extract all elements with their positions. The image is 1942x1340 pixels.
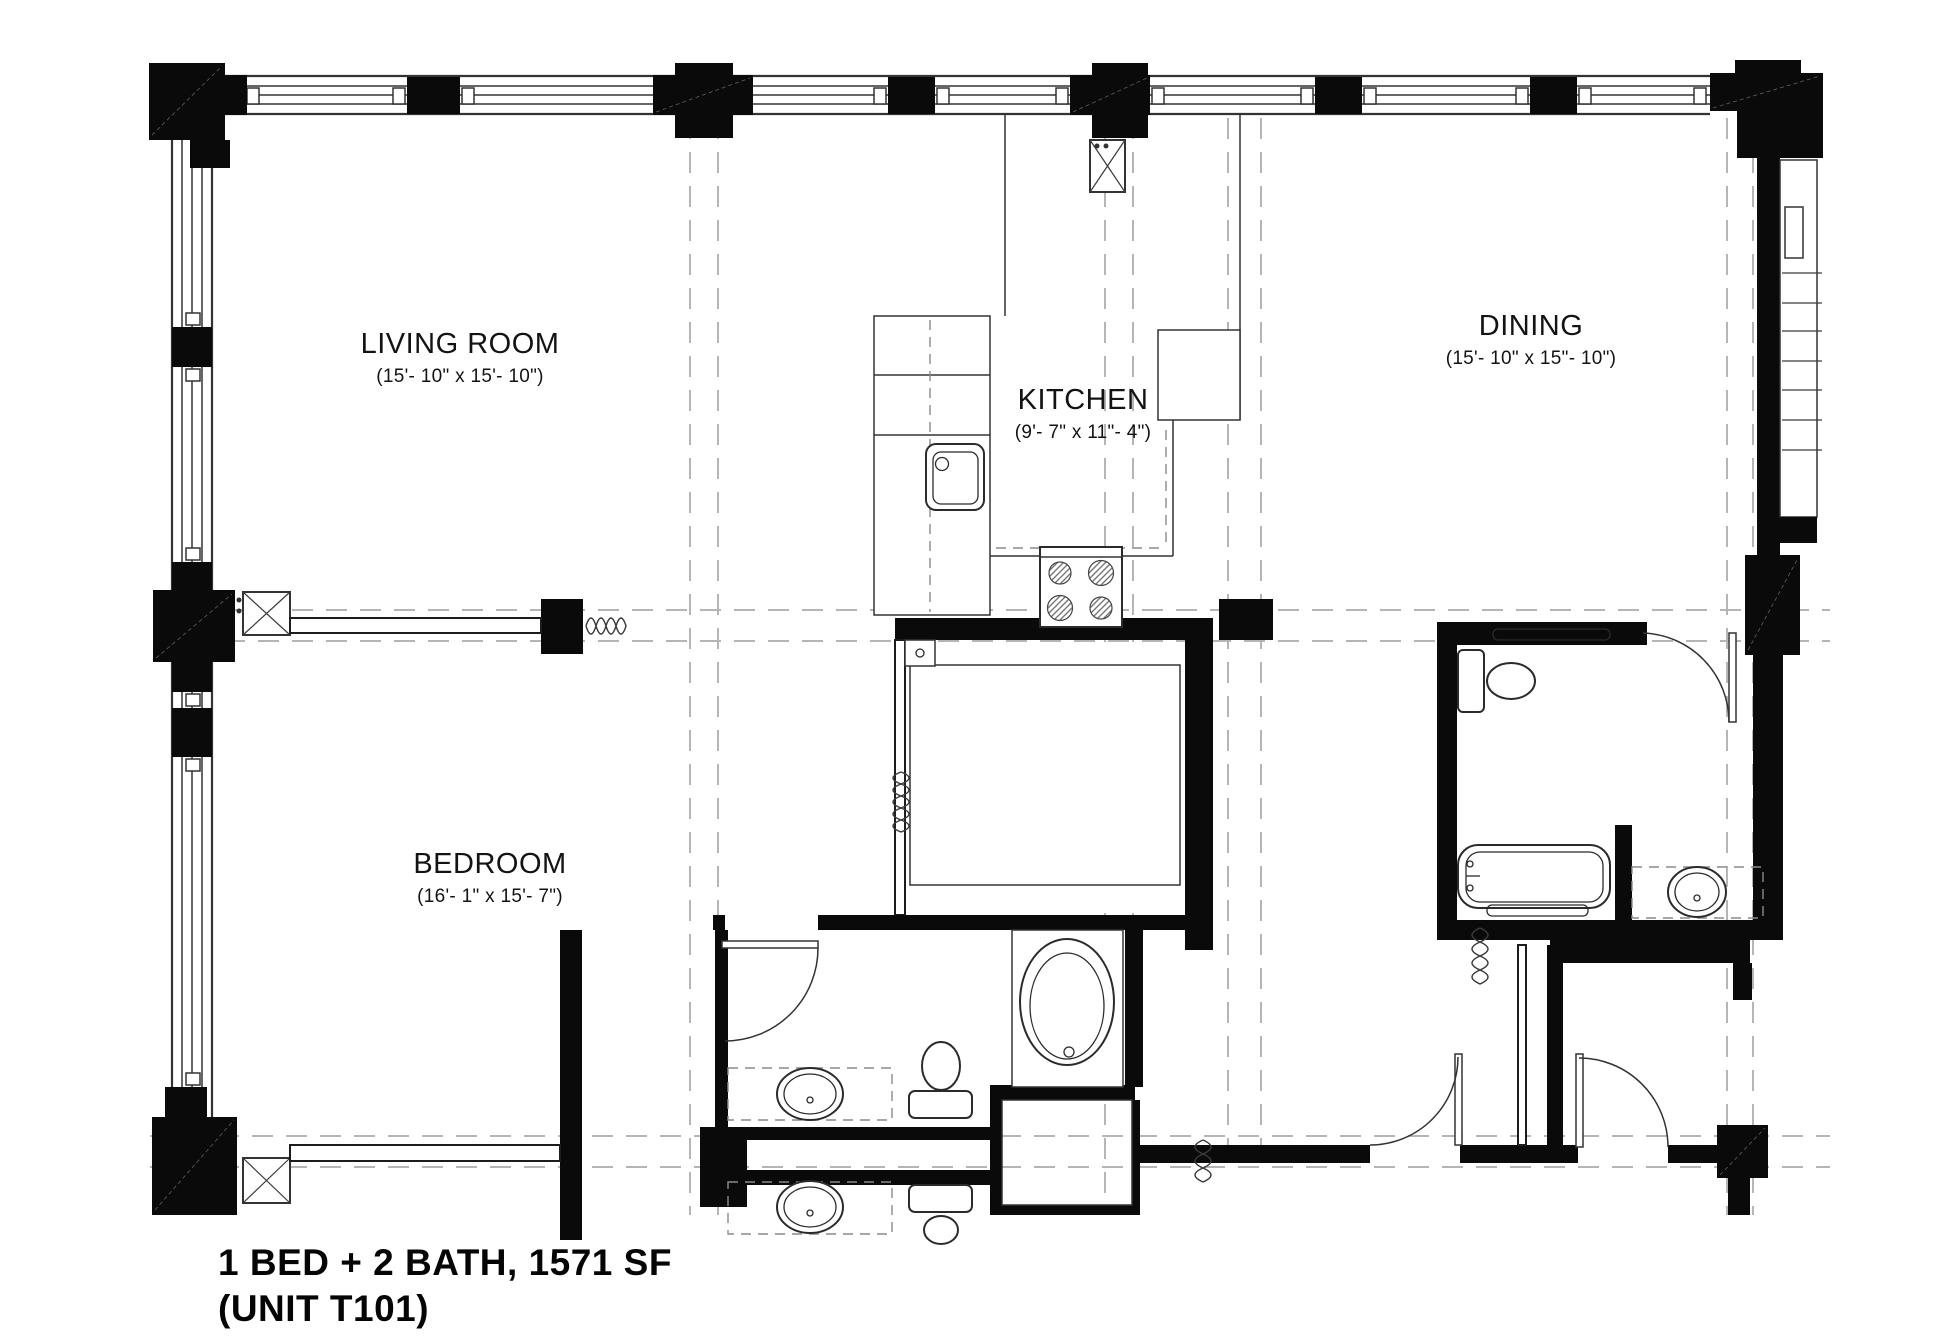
wall-fixture [905,640,935,666]
toilet [1458,650,1535,712]
wall [1460,1145,1578,1163]
wall [747,1170,990,1185]
room-label-bedroom: BEDROOM (16'- 1" x 15'- 7") [413,848,566,908]
wall [700,1127,747,1207]
room-name: DINING [1446,310,1617,343]
room-label-dining: DINING (15'- 10" x 15"- 10") [1446,310,1617,370]
wall [1757,128,1780,560]
vanity-sink [1632,867,1763,918]
wall [1753,650,1783,930]
shower-floor [1002,1100,1132,1205]
wall [1437,622,1647,645]
kitchen-sink [926,444,984,510]
wall [1437,920,1783,940]
room-name: BEDROOM [413,848,566,881]
column [1219,599,1273,640]
column [1728,1178,1750,1215]
wall [1733,963,1752,1000]
plan-title: 1 BED + 2 BATH, 1571 SF (UNIT T101) [218,1240,672,1333]
plan-title-line1: 1 BED + 2 BATH, 1571 SF [218,1240,672,1286]
wall [895,640,905,915]
column [172,708,212,757]
shaft-x-box [243,1158,290,1203]
wall [290,618,541,633]
room-dimensions: (15'- 10" x 15'- 10") [361,366,560,388]
bathroom-door [722,941,818,1041]
wall [747,1127,990,1140]
insulation-coil [586,618,626,634]
column [172,327,212,367]
wall [1002,1205,1140,1215]
toilet [909,1185,972,1212]
column [153,562,235,692]
kitchen-cabinet [1158,330,1240,420]
room-label-kitchen: KITCHEN (9'- 7" x 11"- 4") [1015,384,1152,444]
room-dimensions: (15'- 10" x 15"- 10") [1446,348,1617,370]
wall [713,915,725,930]
kitchen-area [874,316,1240,627]
bathtub [1012,930,1123,1087]
wall [560,930,582,1240]
bathroom-door [1643,633,1736,722]
column [152,1117,237,1215]
wall [290,1145,560,1161]
radiator-shelf [1780,160,1822,543]
floor-plan-drawing [0,0,1942,1340]
wall [1547,945,1563,1145]
wall [1185,618,1213,950]
column [190,140,230,168]
shaft-x-box [1090,140,1125,192]
room-dimensions: (16'- 1" x 15'- 7") [413,886,566,908]
toilet [924,1216,958,1244]
wall [1437,622,1457,920]
column [653,63,753,138]
column [888,77,935,114]
wall [715,930,728,1130]
plan-title-line2: (UNIT T101) [218,1286,672,1332]
room-name: LIVING ROOM [361,328,560,361]
lower-unit-bathroom-partial [728,1181,972,1244]
column [225,75,247,115]
stove [1040,547,1122,627]
room-label-living-room: LIVING ROOM (15'- 10" x 15'- 10") [361,328,560,388]
wall [990,1100,1002,1215]
hall-door [1576,1054,1668,1147]
column [1530,77,1577,114]
second-bathroom [1458,629,1763,918]
wall [1140,1145,1370,1163]
column [407,77,460,114]
wall [1132,1100,1140,1208]
wall [818,915,1200,930]
column [1315,77,1362,114]
bathtub [1458,845,1610,908]
room-dimensions: (9'- 7" x 11"- 4") [1015,422,1152,444]
column [541,599,583,654]
wall [1550,940,1750,963]
wall [1518,945,1526,1145]
wall [1125,930,1143,1087]
wall [1615,825,1632,920]
shaft-x-box [237,592,291,635]
wall [1668,1145,1718,1163]
column [165,1087,207,1117]
column [1070,63,1150,138]
toilet [909,1042,972,1118]
closet-room-floor [907,642,1183,913]
hall-door [1370,1054,1462,1145]
floor-plan: LIVING ROOM (15'- 10" x 15'- 10") KITCHE… [0,0,1942,1340]
vanity-sink [728,1068,892,1120]
room-name: KITCHEN [1015,384,1152,417]
